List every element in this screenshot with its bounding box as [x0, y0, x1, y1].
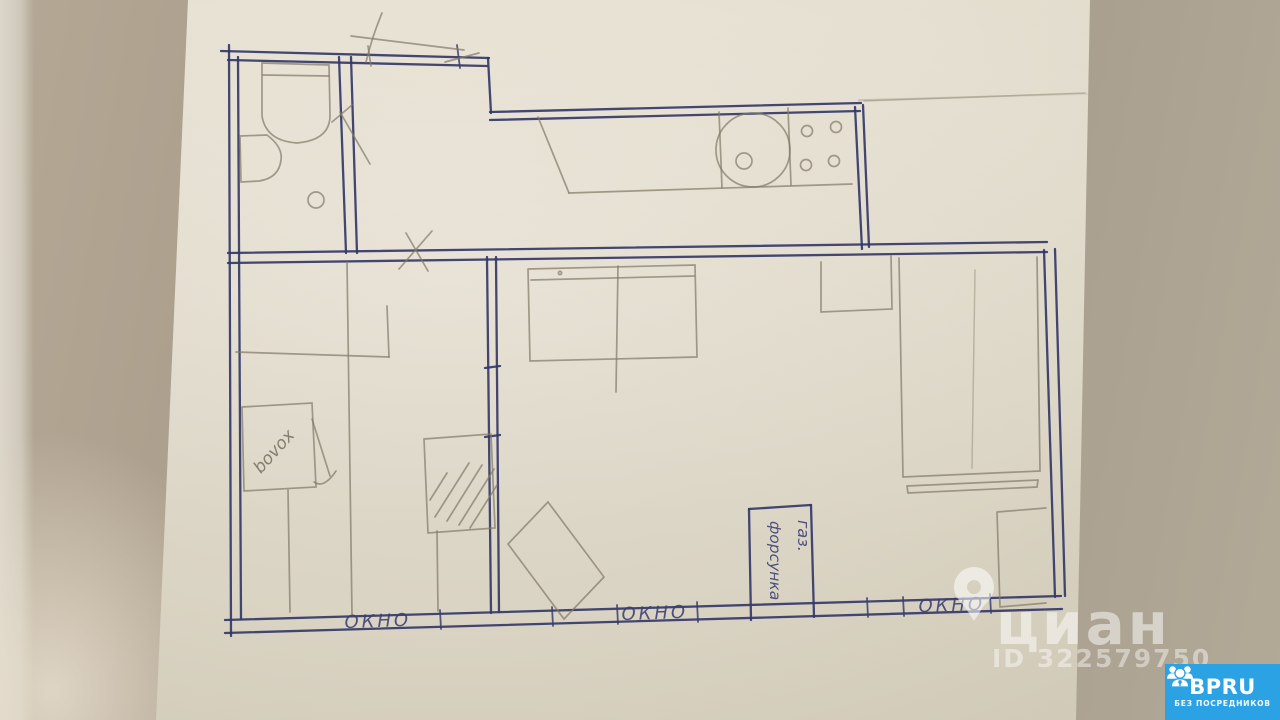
- floor-plan-photo: газ. форсунка ОКНО ОКНО ОКНО bovox циан …: [0, 0, 1280, 720]
- stove-burners-drawing: [801, 122, 842, 171]
- kitchen-sink-drawing: [716, 113, 790, 187]
- right-room-furniture: [899, 257, 1046, 607]
- toilet-drawing: [308, 192, 324, 208]
- washbasin-drawing: [240, 135, 281, 182]
- window-label-2: ОКНО: [621, 602, 688, 625]
- appliance-label: bovox: [250, 425, 300, 478]
- bpru-badge: BPRU БЕЗ ПОСРЕДНИКОВ: [1165, 664, 1280, 720]
- bed-rail-drawing: [907, 480, 1038, 493]
- gas-box-label-line1: газ.: [794, 520, 813, 552]
- bathroom-fixtures: [240, 63, 330, 208]
- window-label-1: ОКНО: [344, 610, 411, 633]
- badge-brand: BPRU: [1189, 677, 1256, 698]
- cian-watermark: циан ID 322579750: [954, 567, 1211, 673]
- nightstand-drawing: [821, 256, 892, 312]
- floor-plan-drawing: газ. форсунка ОКНО ОКНО ОКНО bovox циан …: [0, 0, 1280, 720]
- kitchen-counter-drawing: [538, 108, 852, 193]
- gas-box-label-line2: форсунка: [766, 521, 784, 600]
- people-group-icon: [1165, 664, 1195, 688]
- badge-tagline: БЕЗ ПОСРЕДНИКОВ: [1174, 699, 1271, 708]
- window-ticks: [440, 45, 991, 629]
- sketch-marks: [332, 13, 1085, 271]
- middle-room-furniture: [508, 256, 892, 619]
- bed-drawing: [899, 257, 1040, 477]
- tilted-furniture-drawing: [508, 502, 604, 619]
